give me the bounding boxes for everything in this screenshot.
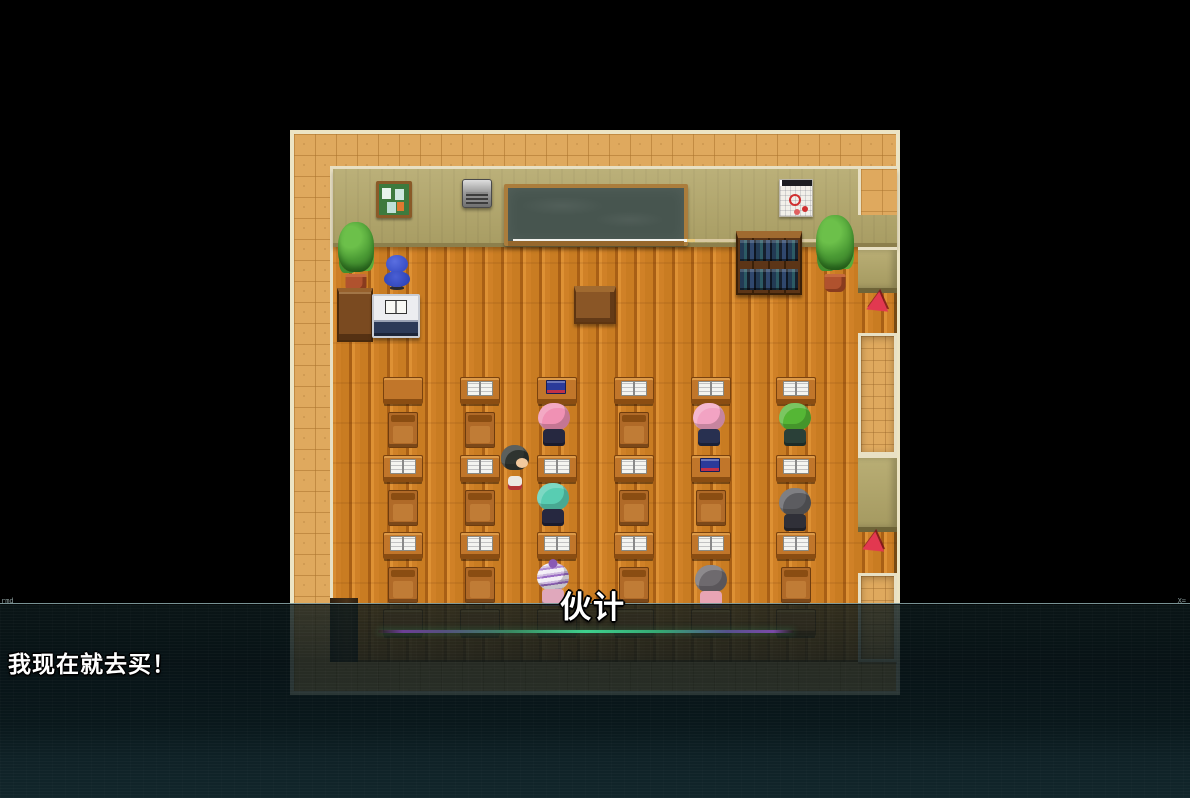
notice-board	[376, 181, 412, 218]
student-desk	[383, 377, 423, 404]
student-chair	[388, 412, 418, 448]
open-book	[621, 381, 647, 396]
watermark-right: X=	[1178, 598, 1186, 605]
watermark-left: rmd	[1, 598, 14, 605]
red-marker-top	[862, 294, 888, 318]
speaker-name-label: 伙计	[560, 582, 626, 627]
hair	[537, 483, 569, 510]
side-cabinet	[337, 288, 373, 342]
hair	[538, 403, 570, 430]
character-student-pink-short	[537, 403, 571, 447]
face	[516, 458, 528, 468]
student-chair	[465, 567, 495, 603]
student-chair	[619, 490, 649, 526]
character-player	[500, 445, 530, 495]
right-pillar-top	[858, 247, 897, 293]
student-chair	[781, 567, 811, 603]
bookshelf	[736, 231, 802, 295]
body	[784, 514, 806, 531]
open-book	[621, 536, 647, 551]
body	[542, 509, 564, 526]
open-book	[544, 459, 570, 474]
open-book	[390, 536, 416, 551]
hat-pompom	[549, 559, 558, 568]
wall-calendar	[779, 179, 813, 217]
lectern	[574, 286, 616, 324]
game-viewport[interactable]: rmd X= 伙计 我现在就去买！	[0, 0, 1190, 798]
character-student-teal	[536, 483, 570, 527]
open-book	[467, 536, 493, 551]
student-chair	[465, 490, 495, 526]
body	[784, 429, 806, 446]
student-chair	[619, 412, 649, 448]
character-student-pink-long	[692, 403, 726, 447]
red-marker-bottom	[858, 534, 886, 560]
character-student-dark	[778, 488, 812, 532]
aura-effect-line	[378, 630, 794, 633]
open-book	[544, 536, 570, 551]
open-book	[783, 536, 809, 551]
student-chair	[388, 567, 418, 603]
open-book	[467, 459, 493, 474]
student-chair	[696, 490, 726, 526]
potted-plant-left	[338, 222, 374, 292]
character-student-green	[778, 403, 812, 447]
student-chair	[388, 490, 418, 526]
potted-plant-right	[816, 215, 854, 292]
hair	[779, 488, 811, 515]
blue-book	[700, 458, 720, 472]
open-book	[698, 381, 724, 396]
dialogue-message: 我现在就去买！	[8, 645, 176, 679]
body	[508, 476, 522, 490]
open-book	[467, 381, 493, 396]
open-book	[698, 536, 724, 551]
student-chair	[465, 412, 495, 448]
open-book	[621, 459, 647, 474]
hair	[779, 403, 811, 430]
hair	[695, 565, 727, 592]
right-pillar-mid	[858, 455, 897, 532]
body	[698, 429, 720, 446]
wall-speaker	[462, 179, 492, 208]
blue-book	[546, 380, 566, 394]
hair	[693, 403, 725, 430]
body	[543, 429, 565, 446]
right-alcove-top	[858, 333, 897, 455]
teacher-desk	[372, 294, 420, 338]
open-book	[390, 459, 416, 474]
open-book	[783, 459, 809, 474]
open-book	[783, 381, 809, 396]
blackboard	[504, 184, 688, 246]
